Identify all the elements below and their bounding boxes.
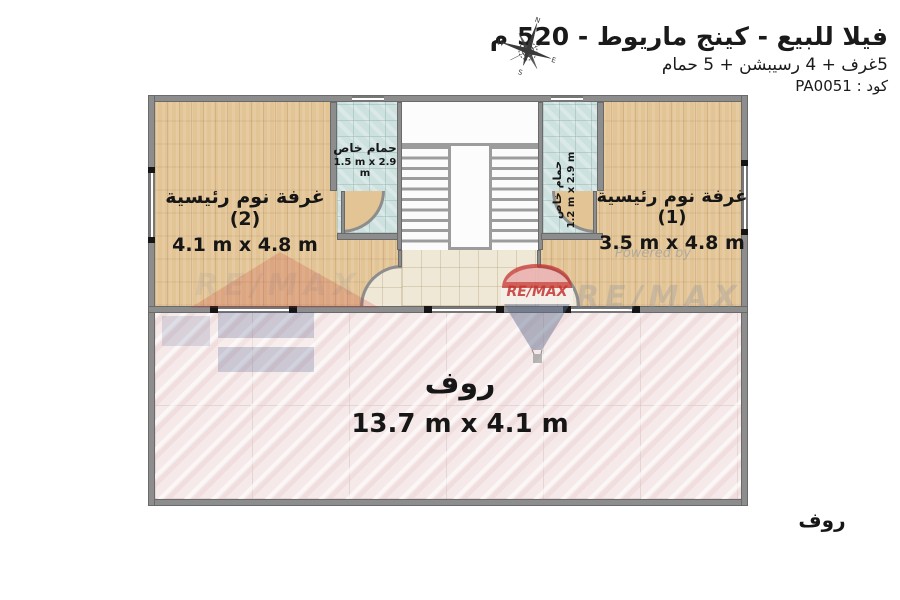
bathroom-left-dimensions: 1.5 m x 2.9 m xyxy=(332,157,398,179)
compass-rose-icon: N E S W xyxy=(496,16,560,86)
compass-e: E xyxy=(550,56,557,65)
roof-dimensions: 13.7 m x 4.1 m xyxy=(160,409,760,439)
door-hallway-roof xyxy=(427,307,500,313)
window-top-right xyxy=(551,96,583,102)
window-cap xyxy=(148,237,155,243)
floor-plan-page: فيلا للبيع - كينج ماريوط - 520 م 5غرف + … xyxy=(0,0,900,600)
window-bedroom2 xyxy=(149,170,155,238)
wall-bathroom-left-bottom xyxy=(337,233,399,240)
compass-s: S xyxy=(517,68,524,77)
bathroom-right-name: حمام خاص xyxy=(551,125,564,255)
wall-left xyxy=(148,95,155,506)
window-mid-bedroom1 xyxy=(566,307,636,313)
bedroom1-name: غرفة نوم رئيسية (1) xyxy=(596,186,748,228)
window-cap xyxy=(289,306,297,313)
wall-top xyxy=(148,95,748,102)
wall-bathroom-bedroom1 xyxy=(597,102,604,191)
stair-landing xyxy=(402,102,538,146)
bathroom-left-label: حمام خاص 1.5 m x 2.9 m xyxy=(332,141,398,179)
roof-name: روف xyxy=(160,366,760,401)
roof-label: روف 13.7 m x 4.1 m xyxy=(160,366,760,439)
bedroom1-dimensions: 3.5 m x 4.8 m xyxy=(596,232,748,254)
wall-right xyxy=(741,95,748,506)
roof-outside-caption: روف xyxy=(786,508,858,532)
compass-w: W xyxy=(496,38,505,48)
window-cap xyxy=(424,306,432,313)
compass-n: N xyxy=(534,16,541,25)
wall-bottom xyxy=(148,499,748,506)
wall-hallway-left xyxy=(398,250,402,267)
bathroom-left-door-leaf xyxy=(341,191,345,234)
bedroom2-dimensions: 4.1 m x 4.8 m xyxy=(157,234,333,256)
bedroom1-label: غرفة نوم رئيسية (1) 3.5 m x 4.8 m xyxy=(596,186,748,254)
stair-flight-right xyxy=(492,146,538,250)
stair-well xyxy=(448,146,492,250)
stair-flight-left xyxy=(402,146,448,250)
window-cap xyxy=(496,306,504,313)
listing-code: كود : PA0051 xyxy=(795,77,888,95)
hallway-floor xyxy=(402,250,538,306)
window-top-left xyxy=(352,96,384,102)
bedroom2-label: غرفة نوم رئيسية (2) 4.1 m x 4.8 m xyxy=(157,186,333,256)
page-subtitle: 5غرف + 4 رسيبشن + 5 حمام xyxy=(662,55,888,75)
window-cap xyxy=(632,306,640,313)
bathroom-left-name: حمام خاص xyxy=(332,141,398,155)
bathroom-right-label: حمام خاص 1.2 m x 2.9 m xyxy=(551,125,585,255)
wall-stairs-bathroomR xyxy=(538,102,543,250)
window-cap xyxy=(210,306,218,313)
window-cap xyxy=(741,160,748,166)
wall-hallway-right xyxy=(537,250,541,267)
window-cap xyxy=(563,306,571,313)
bathroom-right-dimensions: 1.2 m x 2.9 m xyxy=(566,125,577,255)
window-mid-bedroom2 xyxy=(213,307,295,313)
bedroom2-name: غرفة نوم رئيسية (2) xyxy=(157,186,333,230)
window-cap xyxy=(148,167,155,173)
